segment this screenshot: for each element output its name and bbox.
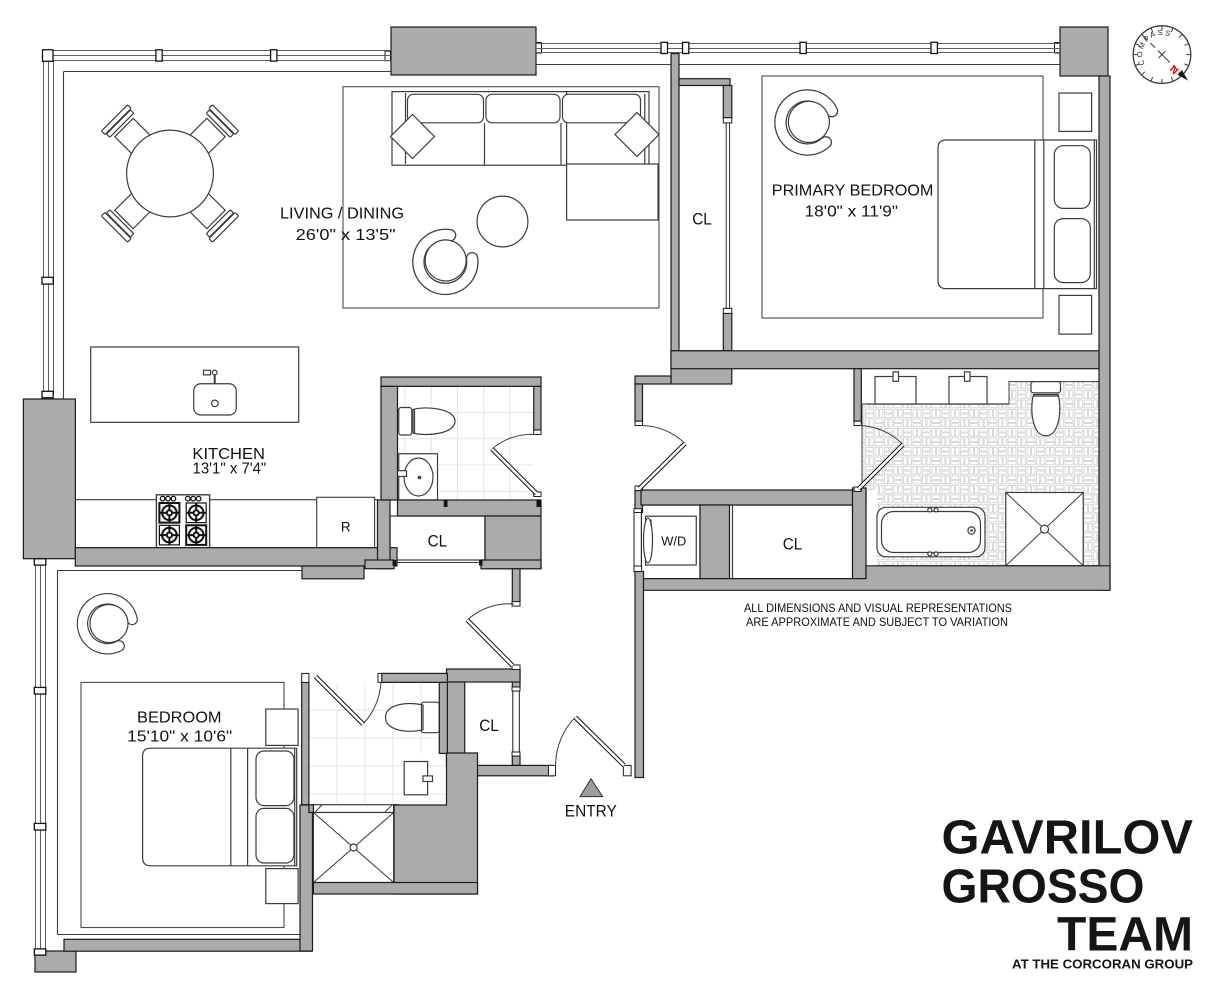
svg-text:AT THE CORCORAN GROUP: AT THE CORCORAN GROUP (1012, 957, 1193, 972)
svg-text:CL: CL (783, 536, 803, 554)
svg-text:W/D: W/D (661, 534, 686, 549)
svg-text:GAVRILOV: GAVRILOV (942, 811, 1194, 865)
svg-text:26'0" x 13'5": 26'0" x 13'5" (296, 227, 396, 244)
svg-text:15'10" x 10'6": 15'10" x 10'6" (127, 729, 232, 746)
svg-text:LIVING / DINING: LIVING / DINING (280, 205, 404, 222)
svg-text:CL: CL (479, 717, 499, 735)
svg-text:ARE APPROXIMATE AND SUBJECT TO: ARE APPROXIMATE AND SUBJECT TO VARIATION (746, 615, 1008, 629)
svg-text:PRIMARY BEDROOM: PRIMARY BEDROOM (772, 182, 934, 199)
svg-text:TEAM: TEAM (1057, 908, 1193, 962)
svg-text:ENTRY: ENTRY (565, 802, 617, 821)
svg-text:GROSSO: GROSSO (942, 859, 1145, 913)
svg-text:R: R (341, 520, 351, 535)
svg-text:ALL DIMENSIONS AND VISUAL REPR: ALL DIMENSIONS AND VISUAL REPRESENTATION… (744, 601, 1012, 615)
svg-text:18'0" x 11'9": 18'0" x 11'9" (805, 204, 899, 221)
svg-text:CL: CL (428, 533, 448, 551)
svg-text:CL: CL (692, 211, 712, 229)
svg-text:13'1" x 7'4": 13'1" x 7'4" (193, 461, 267, 478)
svg-text:BEDROOM: BEDROOM (137, 710, 222, 727)
